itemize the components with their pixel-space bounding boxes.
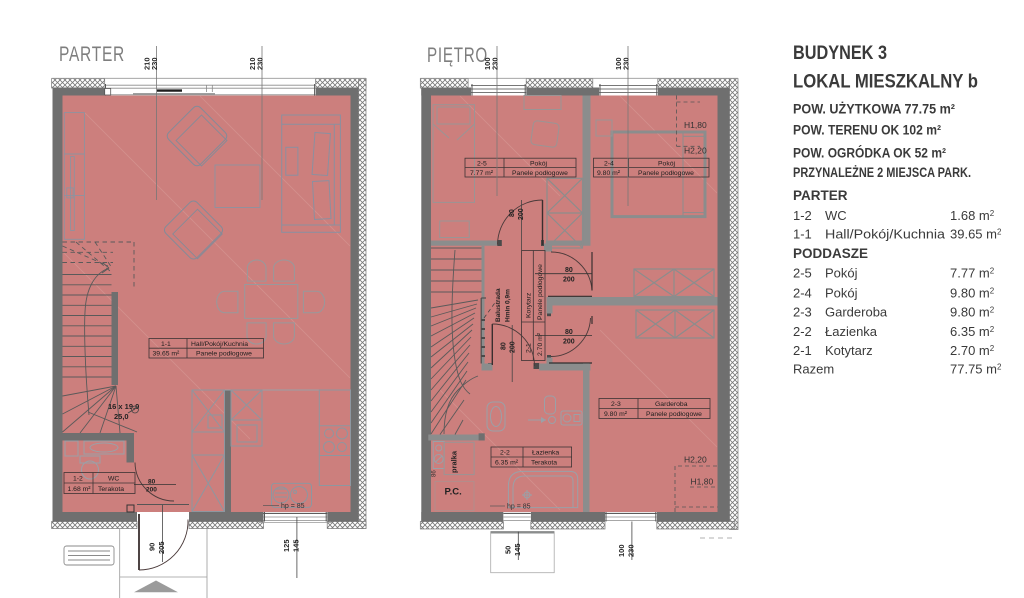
svg-text:200: 200 bbox=[563, 339, 575, 346]
svg-text:Garderoba: Garderoba bbox=[825, 305, 888, 320]
svg-text:39.65 m²: 39.65 m² bbox=[153, 351, 181, 358]
svg-text:Pokój: Pokój bbox=[825, 266, 858, 281]
svg-text:145: 145 bbox=[513, 543, 522, 556]
svg-text:POW. OGRÓDKA OK 52 m²: POW. OGRÓDKA OK 52 m² bbox=[793, 146, 946, 161]
svg-text:PARTER: PARTER bbox=[59, 43, 125, 66]
svg-text:80: 80 bbox=[565, 267, 573, 274]
svg-text:80: 80 bbox=[509, 209, 516, 217]
svg-text:205: 205 bbox=[157, 541, 166, 554]
svg-text:Terakota: Terakota bbox=[98, 486, 124, 493]
svg-text:1-2: 1-2 bbox=[73, 476, 83, 483]
svg-text:P.C.: P.C. bbox=[445, 487, 462, 498]
svg-text:230: 230 bbox=[626, 544, 635, 557]
svg-text:POW. UŻYTKOWA 77.75 m²: POW. UŻYTKOWA 77.75 m² bbox=[793, 102, 955, 117]
svg-text:1.68 m²: 1.68 m² bbox=[68, 486, 92, 493]
svg-text:Pokój: Pokój bbox=[658, 160, 675, 167]
svg-text:200: 200 bbox=[518, 208, 525, 220]
svg-text:H1,80: H1,80 bbox=[691, 477, 714, 487]
svg-text:2.70 m2: 2.70 m2 bbox=[950, 343, 995, 358]
svg-text:7.77 m2: 7.77 m2 bbox=[950, 266, 995, 281]
svg-text:2-4: 2-4 bbox=[793, 286, 812, 301]
svg-text:Panele podłogowe: Panele podłogowe bbox=[537, 264, 544, 320]
svg-text:230: 230 bbox=[256, 57, 265, 70]
svg-text:230: 230 bbox=[491, 57, 500, 70]
svg-text:2-2: 2-2 bbox=[793, 324, 812, 339]
svg-text:2-3: 2-3 bbox=[611, 401, 621, 408]
svg-text:50: 50 bbox=[503, 546, 512, 554]
svg-text:125: 125 bbox=[282, 539, 291, 552]
svg-text:80: 80 bbox=[565, 329, 573, 336]
svg-text:BUDYNEK 3: BUDYNEK 3 bbox=[793, 42, 887, 64]
svg-text:PARTER: PARTER bbox=[793, 188, 848, 203]
svg-text:Panele podłogowe: Panele podłogowe bbox=[512, 170, 568, 177]
svg-text:6.35 m²: 6.35 m² bbox=[495, 460, 519, 467]
svg-text:hp = 85: hp = 85 bbox=[281, 503, 305, 510]
svg-text:Kotytarz: Kotytarz bbox=[825, 343, 873, 358]
svg-text:1-2: 1-2 bbox=[793, 208, 812, 223]
svg-text:Balustrada: Balustrada bbox=[495, 288, 502, 322]
svg-text:2-5: 2-5 bbox=[477, 160, 487, 167]
svg-text:9.80 m2: 9.80 m2 bbox=[950, 286, 995, 301]
svg-text:Hall/Pokój/Kuchnia: Hall/Pokój/Kuchnia bbox=[825, 227, 946, 242]
svg-text:230: 230 bbox=[150, 57, 159, 70]
svg-text:PODDASZE: PODDASZE bbox=[793, 246, 868, 261]
svg-text:Hmin 0,9m: Hmin 0,9m bbox=[505, 289, 512, 322]
svg-text:200: 200 bbox=[563, 277, 575, 284]
svg-text:Łazienka: Łazienka bbox=[532, 450, 559, 457]
svg-text:77.75 m2: 77.75 m2 bbox=[950, 362, 1002, 377]
svg-text:2-4: 2-4 bbox=[604, 160, 614, 167]
svg-text:POW. TERENU OK 102 m²: POW. TERENU OK 102 m² bbox=[793, 123, 941, 138]
svg-text:Panele podłogowe: Panele podłogowe bbox=[646, 411, 702, 418]
svg-text:100: 100 bbox=[617, 544, 626, 557]
svg-text:hp = 85: hp = 85 bbox=[507, 504, 531, 511]
svg-text:1-1: 1-1 bbox=[161, 341, 171, 348]
svg-text:PIĘTRO: PIĘTRO bbox=[427, 44, 488, 67]
svg-text:2-5: 2-5 bbox=[793, 266, 812, 281]
svg-text:16 x 19,0: 16 x 19,0 bbox=[108, 402, 139, 411]
svg-text:80: 80 bbox=[501, 342, 508, 350]
svg-text:6.35 m2: 6.35 m2 bbox=[950, 324, 995, 339]
svg-text:200: 200 bbox=[146, 487, 157, 494]
svg-text:LOKAL MIESZKALNY b: LOKAL MIESZKALNY b bbox=[793, 71, 978, 93]
svg-text:9.80 m²: 9.80 m² bbox=[604, 411, 628, 418]
svg-text:Pokój: Pokój bbox=[530, 160, 547, 167]
svg-text:Garderoba: Garderoba bbox=[655, 401, 688, 408]
svg-text:Hall/Pokój/Kuchnia: Hall/Pokój/Kuchnia bbox=[191, 341, 248, 348]
svg-text:200: 200 bbox=[510, 341, 517, 353]
svg-text:1-1: 1-1 bbox=[793, 227, 812, 242]
svg-text:9.80 m²: 9.80 m² bbox=[597, 170, 621, 177]
svg-text:Łazienka: Łazienka bbox=[825, 324, 878, 339]
svg-text:25,0: 25,0 bbox=[114, 412, 129, 421]
svg-text:Pokój: Pokój bbox=[825, 286, 858, 301]
svg-text:Korytarz: Korytarz bbox=[526, 292, 533, 318]
svg-text:Terakota: Terakota bbox=[531, 460, 557, 467]
svg-text:H2,20: H2,20 bbox=[684, 455, 707, 465]
svg-text:1.68 m2: 1.68 m2 bbox=[950, 208, 995, 223]
svg-text:2-1: 2-1 bbox=[793, 343, 812, 358]
svg-text:230: 230 bbox=[622, 57, 631, 70]
svg-text:Razem: Razem bbox=[793, 362, 834, 377]
svg-text:Panele podłogowe: Panele podłogowe bbox=[638, 170, 694, 177]
svg-text:90: 90 bbox=[148, 543, 157, 551]
svg-text:WC: WC bbox=[825, 208, 847, 223]
svg-text:2-2: 2-2 bbox=[500, 450, 510, 457]
svg-text:145: 145 bbox=[291, 539, 300, 552]
svg-text:7.77 m²: 7.77 m² bbox=[470, 170, 494, 177]
svg-text:80: 80 bbox=[148, 478, 156, 485]
svg-text:WC: WC bbox=[108, 476, 119, 483]
svg-text:pralka: pralka bbox=[450, 450, 459, 473]
svg-text:2-3: 2-3 bbox=[793, 305, 812, 320]
svg-text:PRZYNALEŻNE 2 MIEJSCA PARK.: PRZYNALEŻNE 2 MIEJSCA PARK. bbox=[793, 165, 971, 180]
svg-text:86: 86 bbox=[432, 470, 438, 477]
svg-text:39.65 m2: 39.65 m2 bbox=[950, 227, 1002, 242]
svg-text:Panele podłogowe: Panele podłogowe bbox=[196, 351, 252, 358]
svg-text:H1,80: H1,80 bbox=[684, 120, 707, 130]
svg-text:9.80 m2: 9.80 m2 bbox=[950, 305, 995, 320]
svg-text:H2,20: H2,20 bbox=[684, 146, 707, 156]
